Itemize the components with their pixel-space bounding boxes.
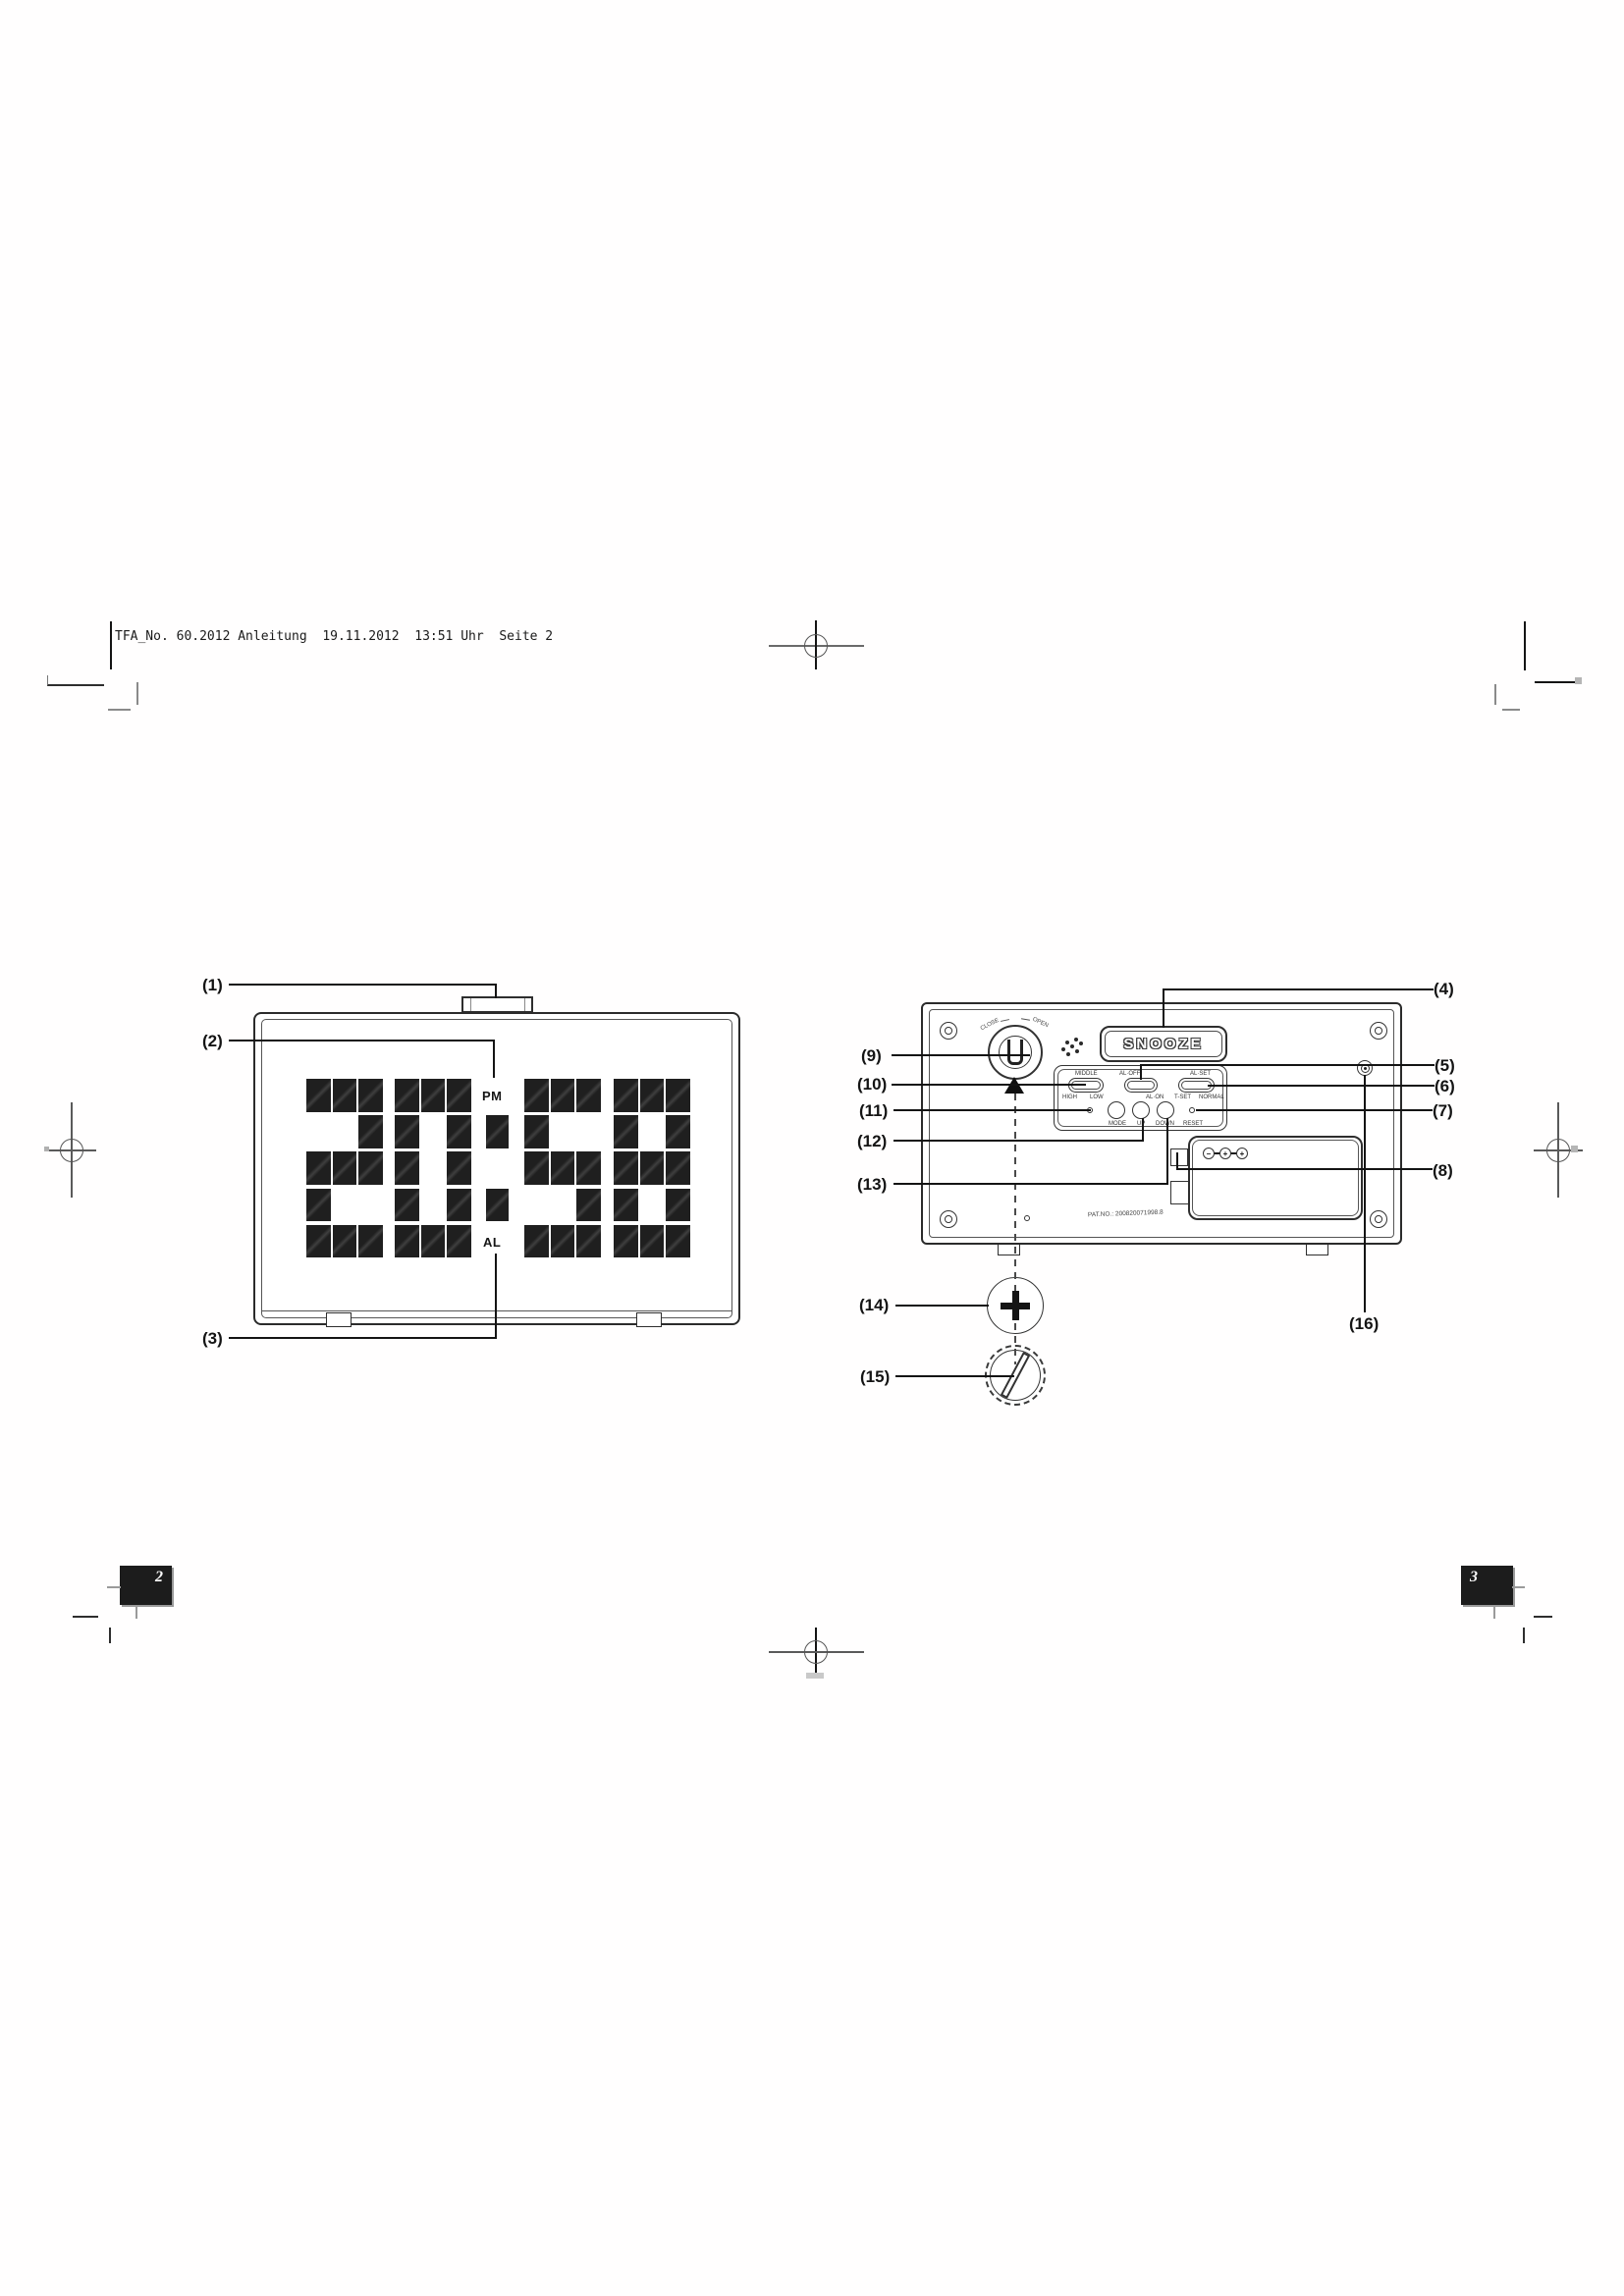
snooze-label: SNOOZE: [1123, 1036, 1203, 1052]
lcd-segment-block: [666, 1151, 690, 1185]
callout-leader-line: [1364, 1075, 1366, 1312]
clock-foot: [636, 1312, 662, 1327]
screw-icon: [1375, 1027, 1382, 1035]
callout-9: (9): [861, 1046, 882, 1066]
crop-mark: [1575, 677, 1582, 684]
lcd-segment-block: [306, 1079, 331, 1112]
clock-foot: [326, 1312, 352, 1327]
battery-plus-mark: +: [1236, 1148, 1248, 1159]
page-number-left: 2: [120, 1566, 172, 1605]
crop-mark: [110, 621, 112, 669]
crop-mark: [1523, 1628, 1525, 1643]
mode-label: MODE: [1109, 1121, 1126, 1127]
callout-leader-line: [1166, 1118, 1168, 1185]
plus-glyph: +: [1240, 1149, 1245, 1158]
battery-compartment-inner: [1192, 1140, 1359, 1216]
crop-mark: [1502, 709, 1520, 711]
reset-hole: [1189, 1107, 1195, 1113]
crop-mark: [1524, 621, 1526, 670]
callout-leader-line: [893, 1109, 1091, 1111]
lcd-segment-block: [358, 1225, 383, 1258]
callout-13: (13): [857, 1175, 887, 1195]
lock-slot-icon: [1007, 1040, 1023, 1065]
volume-middle-label: MIDDLE: [1075, 1071, 1098, 1077]
callout-3: (3): [202, 1329, 223, 1349]
lcd-segment-block: [576, 1225, 601, 1258]
lcd-segment-block: [306, 1189, 331, 1222]
plus-glyph: +: [1223, 1149, 1228, 1158]
callout-16: (16): [1349, 1314, 1379, 1334]
lcd-segment-block: [421, 1079, 446, 1112]
callout-leader-line: [1163, 988, 1164, 1028]
callout-14: (14): [859, 1296, 889, 1315]
lcd-segment-block: [395, 1079, 419, 1112]
crop-mark: [135, 1606, 137, 1619]
crop-mark: [1494, 684, 1496, 705]
callout-leader-line: [229, 984, 496, 986]
lcd-segment-block: [576, 1151, 601, 1185]
lcd-segment-block: [395, 1189, 419, 1222]
lcd-segment-block: [358, 1079, 383, 1112]
lcd-segment-block: [395, 1151, 419, 1185]
speaker-hole: [1065, 1041, 1069, 1044]
speaker-hole: [1079, 1041, 1083, 1045]
callout-10: (10): [857, 1075, 887, 1095]
callout-leader-line: [495, 1254, 497, 1339]
lcd-segment-block: [524, 1115, 549, 1148]
battery-mid-mark: +: [1219, 1148, 1231, 1159]
callout-8: (8): [1433, 1161, 1453, 1181]
callout-12: (12): [857, 1132, 887, 1151]
lcd-segment-block: [640, 1225, 665, 1258]
snooze-button: SNOOZE: [1100, 1026, 1227, 1062]
manual-page: TFA_No. 60.2012 Anleitung 19.11.2012 13:…: [0, 0, 1624, 2296]
lcd-segment-block: [333, 1151, 357, 1185]
crop-mark: [1493, 1606, 1495, 1619]
lcd-segment-block: [486, 1115, 509, 1148]
lcd-segment-block: [666, 1189, 690, 1222]
crop-mark: [1535, 681, 1578, 683]
lcd-segment-block: [614, 1079, 638, 1112]
callout-5: (5): [1435, 1056, 1455, 1076]
lcd-segment-block: [358, 1151, 383, 1185]
volume-low-label: LOW: [1090, 1095, 1104, 1100]
crop-mark: [107, 1586, 121, 1588]
callout-leader-line: [892, 1054, 1030, 1056]
speaker-hole: [1066, 1052, 1070, 1056]
callout-leader-line: [892, 1084, 1086, 1086]
callout-leader-line: [229, 1040, 494, 1041]
screw-hole: [1024, 1215, 1030, 1221]
page-number-left-value: 2: [155, 1569, 163, 1586]
lcd-segment-block: [666, 1225, 690, 1258]
lcd-segment-block: [576, 1189, 601, 1222]
callout-leader-line: [893, 1183, 1168, 1185]
lcd-segment-block: [551, 1151, 575, 1185]
callout-leader-line: [1208, 1085, 1435, 1087]
clock-top-button: [461, 996, 533, 1013]
callout-15: (15): [860, 1367, 890, 1387]
lcd-segment-block: [640, 1151, 665, 1185]
lcd-segment-block: [486, 1189, 509, 1222]
registration-mark: [806, 1673, 824, 1679]
callout-leader-line: [1142, 1118, 1144, 1142]
normal-label: NORMAL: [1199, 1095, 1224, 1100]
callout-2: (2): [202, 1032, 223, 1051]
alignment-dashed-line: [1014, 1094, 1016, 1364]
registration-mark: [1571, 1146, 1578, 1152]
screw-icon: [945, 1027, 952, 1035]
reset-label: RESET: [1183, 1121, 1203, 1127]
lcd-segment-block: [666, 1079, 690, 1112]
lcd-segment-block: [524, 1151, 549, 1185]
mode-button: [1108, 1101, 1125, 1119]
callout-leader-line: [229, 1337, 496, 1339]
lcd-segment-block: [551, 1225, 575, 1258]
lcd-segment-block: [333, 1079, 357, 1112]
cross-screw-slot: [1012, 1291, 1019, 1320]
crop-mark: [47, 675, 104, 686]
crop-mark: [1512, 1586, 1525, 1588]
callout-leader-line: [493, 1040, 495, 1078]
lcd-segment-block: [395, 1225, 419, 1258]
callout-leader-line: [1196, 1109, 1433, 1111]
lcd-segment-block: [614, 1189, 638, 1222]
power-jack-pin: [1364, 1067, 1367, 1070]
registration-mark: [60, 1139, 83, 1162]
lcd-segment-block: [306, 1151, 331, 1185]
lcd-segment-block: [421, 1225, 446, 1258]
callout-4: (4): [1434, 980, 1454, 999]
lcd-segment-block: [447, 1151, 471, 1185]
clock-bezel-line: [262, 1310, 731, 1311]
registration-mark: [1546, 1139, 1570, 1162]
lcd-segment-block: [614, 1115, 638, 1148]
lcd-segment-block: [614, 1225, 638, 1258]
lcd-segment-block: [576, 1079, 601, 1112]
alarm-off-label: AL·OFF: [1119, 1071, 1140, 1077]
pm-indicator: PM: [482, 1089, 503, 1103]
page-number-right-value: 3: [1470, 1569, 1478, 1586]
alarm-onoff-switch-knob: [1127, 1081, 1155, 1090]
screw-icon: [1375, 1215, 1382, 1223]
lcd-segment-block: [614, 1151, 638, 1185]
callout-leader-line: [1163, 988, 1434, 990]
registration-mark: [44, 1147, 49, 1151]
callout-leader-line: [895, 1305, 989, 1307]
crop-mark: [108, 709, 131, 711]
callout-11: (11): [859, 1101, 888, 1121]
lcd-segment-block: [640, 1079, 665, 1112]
battery-minus-mark: –: [1203, 1148, 1215, 1159]
time-set-label: T-SET: [1174, 1095, 1191, 1100]
battery-door-tab: [1170, 1181, 1190, 1204]
callout-leader-line: [893, 1140, 1144, 1142]
speaker-hole: [1074, 1038, 1078, 1041]
callout-leader-line: [895, 1375, 1014, 1377]
lcd-segment-block: [551, 1079, 575, 1112]
screw-icon: [945, 1215, 952, 1223]
alarm-set-label: AL·SET: [1190, 1071, 1211, 1077]
speaker-hole: [1075, 1049, 1079, 1053]
callout-6: (6): [1435, 1077, 1455, 1096]
minus-glyph: –: [1207, 1149, 1211, 1158]
clock-top-button-tick: [524, 998, 525, 1011]
crop-mark: [1534, 1616, 1552, 1618]
lcd-segment-block: [447, 1079, 471, 1112]
lcd-segment-block: [447, 1115, 471, 1148]
lcd-segment-block: [447, 1225, 471, 1258]
callout-leader-line: [1140, 1064, 1435, 1066]
clock-top-button-tick: [470, 998, 471, 1011]
callout-leader-line: [1140, 1064, 1142, 1080]
down-label: DOWN: [1156, 1121, 1174, 1127]
page-number-right: 3: [1461, 1566, 1513, 1605]
crop-mark: [136, 682, 138, 705]
lcd-segment-block: [524, 1079, 549, 1112]
lcd-segment-block: [395, 1115, 419, 1148]
lcd-segment-block: [524, 1225, 549, 1258]
lcd-segment-block: [447, 1189, 471, 1222]
callout-7: (7): [1433, 1101, 1453, 1121]
document-header: TFA_No. 60.2012 Anleitung 19.11.2012 13:…: [115, 629, 553, 644]
battery-door-tab: [1170, 1148, 1188, 1166]
alarm-indicator: AL: [483, 1235, 501, 1250]
volume-high-label: HIGH: [1062, 1095, 1077, 1100]
registration-mark: [804, 1640, 828, 1664]
speaker-hole: [1061, 1047, 1065, 1051]
up-button: [1132, 1101, 1150, 1119]
crop-mark: [73, 1616, 98, 1618]
lcd-segment-block: [358, 1115, 383, 1148]
alarm-on-label: AL·ON: [1146, 1095, 1164, 1100]
callout-leader-line: [495, 984, 497, 998]
callout-leader-line: [1176, 1168, 1433, 1170]
lcd-segment-block: [666, 1115, 690, 1148]
lcd-segment-block: [306, 1225, 331, 1258]
down-button: [1157, 1101, 1174, 1119]
lcd-segment-block: [333, 1225, 357, 1258]
callout-1: (1): [202, 976, 223, 995]
speaker-hole: [1070, 1044, 1074, 1048]
registration-mark: [804, 634, 828, 658]
crop-mark: [109, 1628, 111, 1643]
